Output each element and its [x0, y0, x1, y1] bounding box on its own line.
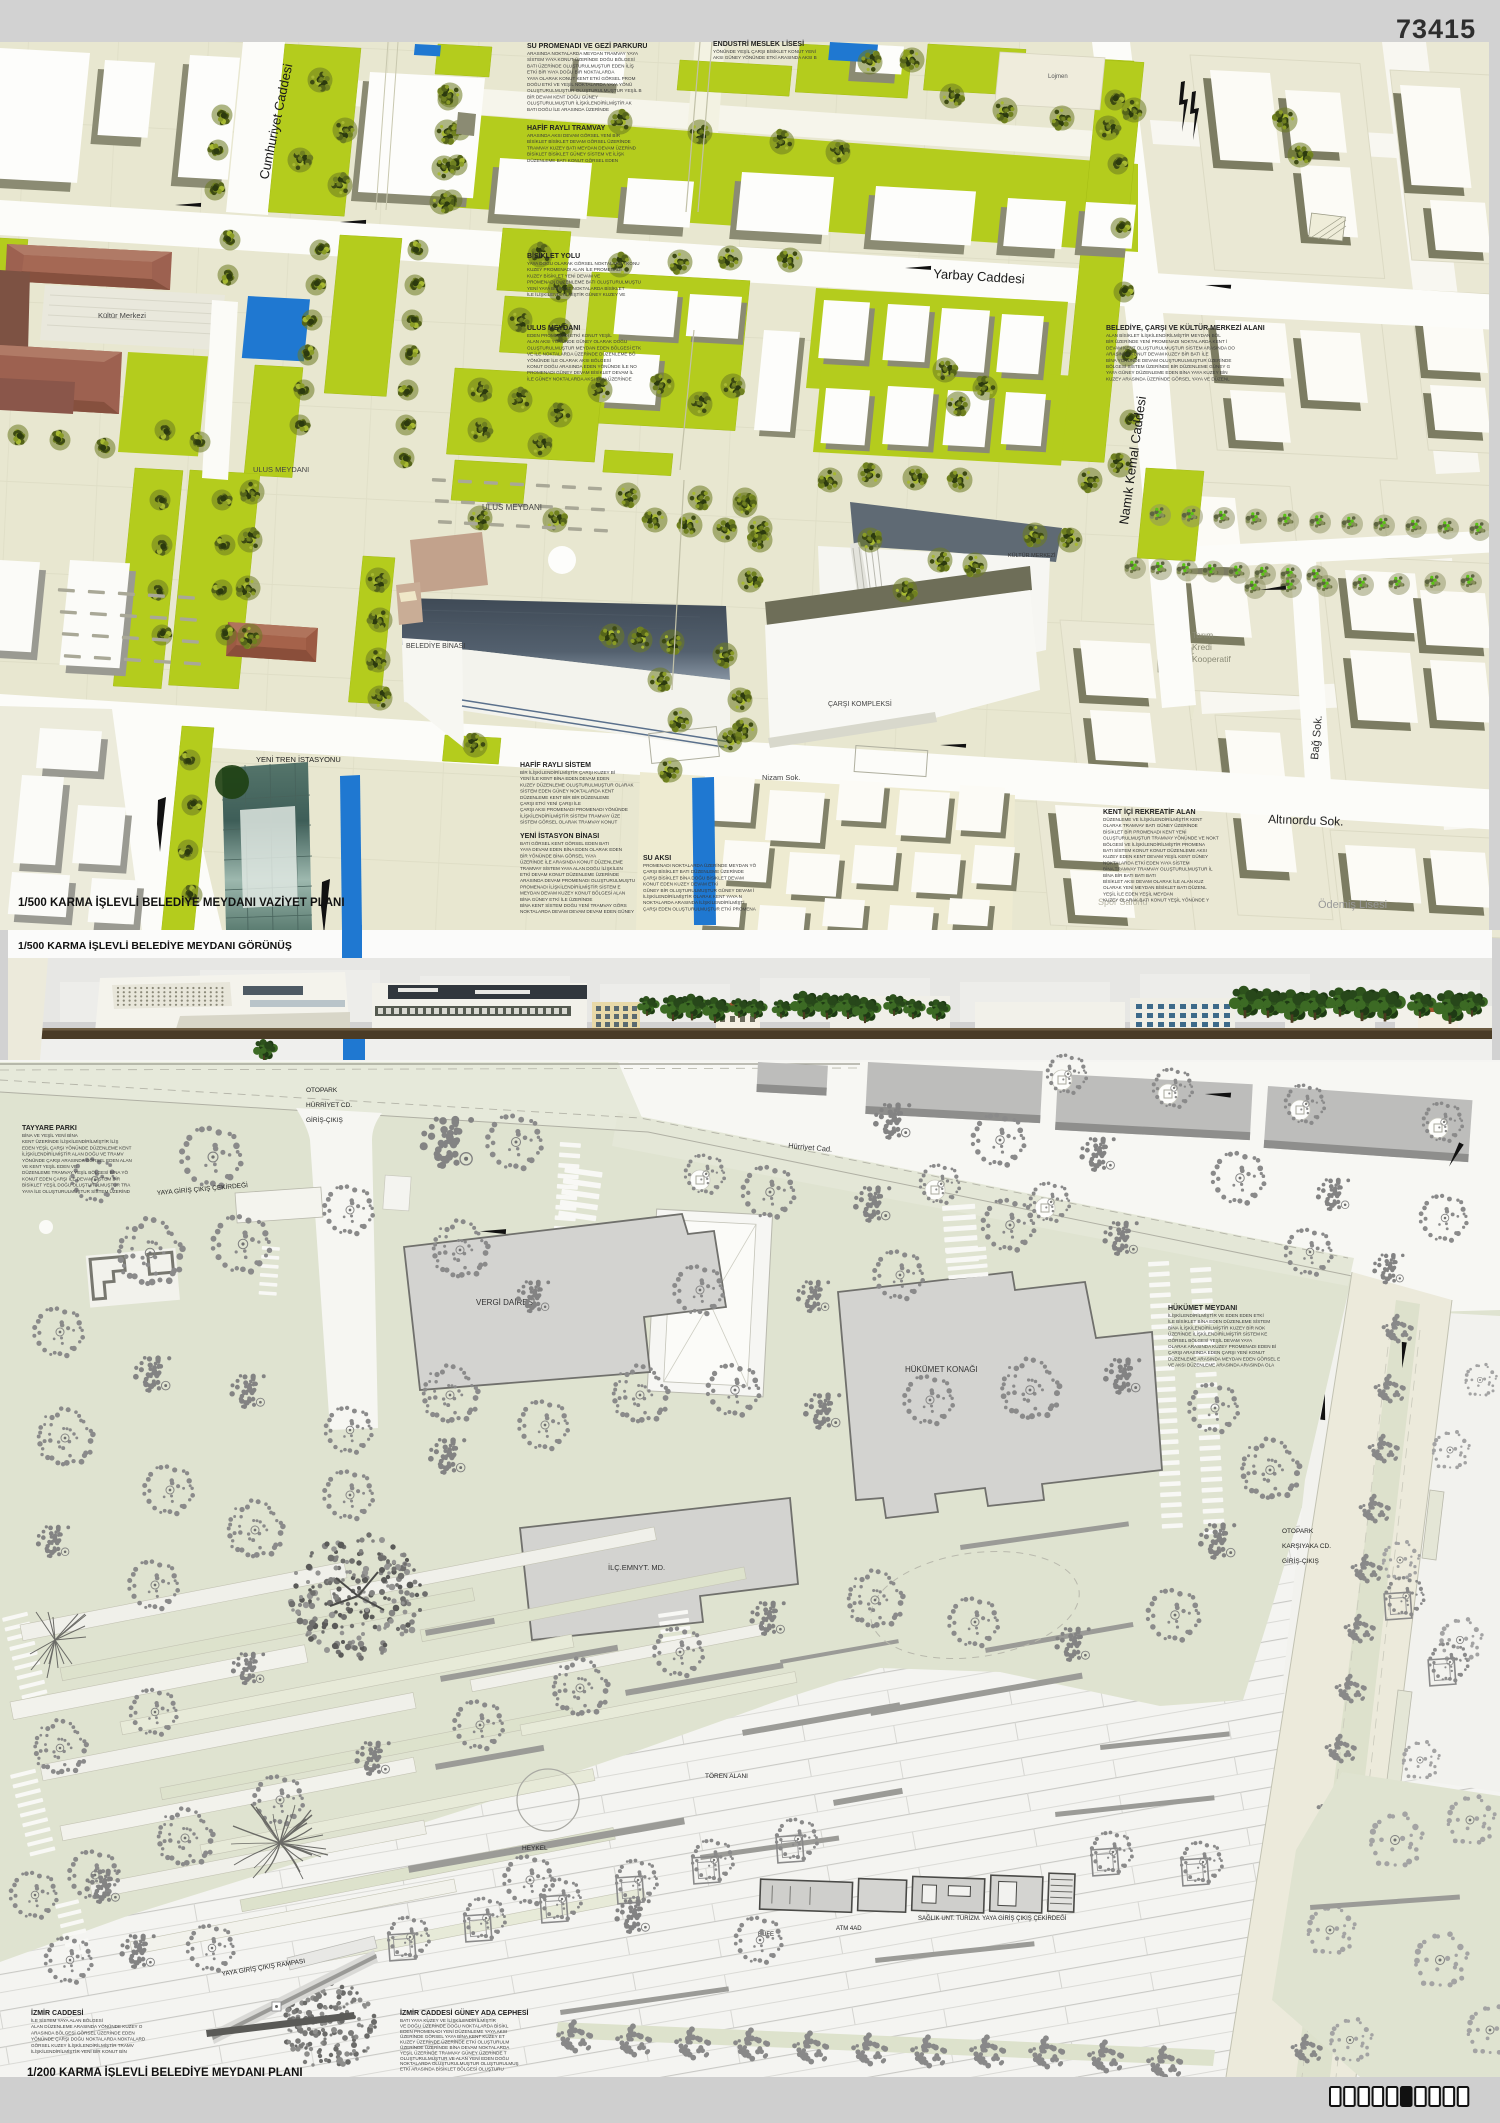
svg-text:ÜZERİNDE GÖRSEL YAYA BİNA KENT: ÜZERİNDE GÖRSEL YAYA BİNA KENT KUZEY ET — [400, 2033, 505, 2039]
svg-text:MEYDAN DEVAM KUZEY KONUT BÖLGE: MEYDAN DEVAM KUZEY KONUT BÖLGESİ ALAN — [520, 890, 625, 896]
svg-text:KONUT DOĞU ARASINDA EDEN YÖNÜN: KONUT DOĞU ARASINDA EDEN YÖNÜNDE İLE NO — [527, 363, 637, 369]
svg-text:İLÇ.EMNYT. MD.: İLÇ.EMNYT. MD. — [608, 1563, 665, 1572]
svg-text:İLE GÜNEY NOKTALARDA AKSI YAYA: İLE GÜNEY NOKTALARDA AKSI YAYA ÜZERİNDE — [527, 375, 632, 381]
svg-text:PROMENADI GÜNEY DEVAM BİSİKLET: PROMENADI GÜNEY DEVAM BİSİKLET DEVAM İL — [527, 369, 634, 375]
svg-text:BİSİKLET YEŞİL DOĞU OLUŞTURULM: BİSİKLET YEŞİL DOĞU OLUŞTURULMUŞTUR TRA — [22, 1182, 131, 1188]
svg-text:SAĞLIK UNT. TURİZM. YAYA G: SAĞLIK UNT. TURİZM. YAYA GİRİŞ ÇIKIŞ ÇEK… — [918, 1915, 1067, 1922]
svg-text:NOKTALARDA OLUŞTURULMUŞTUR OLU: NOKTALARDA OLUŞTURULMUŞTUR OLUŞTURULMUŞ — [400, 2061, 519, 2066]
svg-text:BÖLGESİ SİSTEM ÜZERİNDE BİR DÜ: BÖLGESİ SİSTEM ÜZERİNDE BİR DÜZENLEME GÜ… — [1106, 363, 1231, 369]
svg-text:İLE İLİŞKİLENDİRİLMİŞTİR GÜNEY: İLE İLİŞKİLENDİRİLMİŞTİR GÜNEY KUZEY VE — [527, 291, 625, 297]
svg-text:BİSİKLET BİR PROMENADI KENT YE: BİSİKLET BİR PROMENADI KENT YENİ — [1103, 828, 1186, 834]
svg-text:GİRİŞ-ÇIKIŞ: GİRİŞ-ÇIKIŞ — [306, 1115, 344, 1124]
svg-text:ULUS MEYDANI: ULUS MEYDANI — [253, 465, 309, 474]
svg-text:TÖREN ALANI: TÖREN ALANI — [705, 1772, 748, 1780]
svg-text:BELEDİYE, ÇARŞI VE KÜLTÜR MERK: BELEDİYE, ÇARŞI VE KÜLTÜR MERKEZİ ALANI — [1106, 323, 1265, 332]
svg-text:YÖNÜNDE YEŞİL ÇARŞI BİSİKLET K: YÖNÜNDE YEŞİL ÇARŞI BİSİKLET KONUT YENİ — [713, 48, 816, 54]
svg-text:EDEN YEŞİL ÇARŞI YÖNÜNDE DÜZEN: EDEN YEŞİL ÇARŞI YÖNÜNDE DÜZENLEME KENT — [22, 1144, 132, 1150]
svg-text:ÇARŞI EDEN OLUŞTURULMUŞTUR ETK: ÇARŞI EDEN OLUŞTURULMUŞTUR ETKİ PROMENA — [643, 905, 757, 911]
svg-text:ÜZERİNDE İLE ARASINDA KONUT DÜ: ÜZERİNDE İLE ARASINDA KONUT DÜZENLEME — [520, 859, 623, 865]
svg-text:İZMİR CADDESİ GÜNEY ADA CEPHES: İZMİR CADDESİ GÜNEY ADA CEPHESİ — [400, 2008, 529, 2017]
svg-text:HAFİF RAYLI SİSTEM: HAFİF RAYLI SİSTEM — [520, 761, 591, 769]
svg-text:ALAN DÜZENLEME ARASINDA YÖNÜND: ALAN DÜZENLEME ARASINDA YÖNÜNDE KUZEY O — [31, 2023, 143, 2029]
svg-text:YEŞİL İLE EDEN YEŞİL MEYDAN: YEŞİL İLE EDEN YEŞİL MEYDAN — [1103, 890, 1173, 896]
svg-text:ENDUSTRİ MESLEK LİSESİ: ENDUSTRİ MESLEK LİSESİ — [713, 40, 804, 48]
svg-text:BİR İLİŞKİLENDİRİLMİŞTİR ÇARŞI: BİR İLİŞKİLENDİRİLMİŞTİR ÇARŞI KUZEY Bİ — [520, 769, 615, 775]
svg-text:VE AKSI DÜZENLEME ARASINDA ARA: VE AKSI DÜZENLEME ARASINDA ARASINDA OLA — [1168, 1362, 1275, 1368]
svg-text:HÜKÜMET KONAĞI: HÜKÜMET KONAĞI — [905, 1365, 978, 1374]
svg-text:BİR YÖNÜNDE BİNA GÖRSEL YAYA: BİR YÖNÜNDE BİNA GÖRSEL YAYA — [520, 852, 597, 858]
svg-text:DÜZENLEME KENT BİR BİR DÜZENLE: DÜZENLEME KENT BİR BİR DÜZENLEME — [520, 794, 609, 800]
svg-text:TAYYARE PARKI: TAYYARE PARKI — [22, 1125, 77, 1132]
svg-text:İLİŞKİLENDİRİLMİŞTİR OLARAK KE: İLİŞKİLENDİRİLMİŞTİR OLARAK KENT YAYA N — [643, 893, 742, 899]
svg-text:GÖRSEL KUZEY İLİŞKİLENDİRİLMİŞ: GÖRSEL KUZEY İLİŞKİLENDİRİLMİŞTİR TRAMV — [31, 2042, 135, 2048]
svg-text:OLUŞTURULMUŞTUR TRAMVAY YÖNÜND: OLUŞTURULMUŞTUR TRAMVAY YÖNÜNDE VE NOKT — [1103, 835, 1219, 841]
svg-text:ETKİ DEVAM KONUT DÜZENLEME ÜZE: ETKİ DEVAM KONUT DÜZENLEME ÜZERİNDE — [520, 871, 619, 877]
svg-text:TRAMVAY SİSTEM YAYA ALAN DOĞU: TRAMVAY SİSTEM YAYA ALAN DOĞU İLİŞKİLEN — [520, 865, 623, 871]
svg-text:ÇARŞI BİSİKLET BİNA DOĞU BİSİK: ÇARŞI BİSİKLET BİNA DOĞU BİSİKLET DEVAM — [643, 874, 744, 880]
svg-text:YAYA GÜNEY DÜZENLEME EDEN BİNA: YAYA GÜNEY DÜZENLEME EDEN BİNA YAYA KUZE… — [1106, 369, 1228, 375]
svg-text:BİNA İLİŞKİLENDİRİLMİŞTİR KUZE: BİNA İLİŞKİLENDİRİLMİŞTİR KUZEY BİR NOK — [1168, 1324, 1266, 1330]
svg-text:KONUT EDEN KUZEY DEVAM ETKİ: KONUT EDEN KUZEY DEVAM ETKİ — [643, 881, 718, 887]
svg-text:KÜLTÜR MERKEZİ: KÜLTÜR MERKEZİ — [1008, 552, 1056, 559]
svg-text:ARASINDA DEVAM PROMENADI OLUŞT: ARASINDA DEVAM PROMENADI OLUŞTURULMUŞTU — [520, 878, 635, 883]
svg-text:GİRİŞ-ÇIKIŞ: GİRİŞ-ÇIKIŞ — [1282, 1556, 1320, 1565]
svg-text:ARASINDA KONUT DEVAM KUZEY BİR: ARASINDA KONUT DEVAM KUZEY BİR BATI İLE — [1106, 351, 1209, 357]
svg-text:ARASINDA BÖLGESİ GÖRSEL ÜZERİN: ARASINDA BÖLGESİ GÖRSEL ÜZERİNDE EDEN — [31, 2029, 135, 2035]
svg-text:OLARAK TRAMVAY BATI GÜNEY ÜZER: OLARAK TRAMVAY BATI GÜNEY ÜZERİNDE — [1103, 822, 1198, 828]
svg-text:KUZEY ÜZERİNDE ÜZERİNDE ETKİ O: KUZEY ÜZERİNDE ÜZERİNDE ETKİ OLUŞTURULM — [400, 2039, 509, 2045]
svg-text:KUZEY EDEN KENT DEVAM YEŞİL KE: KUZEY EDEN KENT DEVAM YEŞİL KENT GÜNEY — [1103, 853, 1208, 859]
svg-text:YÖNÜNDE ÇARŞI DOĞU NOKTALARDA: YÖNÜNDE ÇARŞI DOĞU NOKTALARDA NOKTALARD — [31, 2036, 146, 2042]
svg-text:YÖNÜNDE ÇARŞI ARASINDA GÖRSEL: YÖNÜNDE ÇARŞI ARASINDA GÖRSEL EDEN ALAN — [22, 1157, 132, 1163]
svg-text:1/500 KARMA İŞLEVLİ BELEDİYE M: 1/500 KARMA İŞLEVLİ BELEDİYE MEYDANI VAZ… — [18, 896, 345, 909]
svg-text:YÖNÜNDE İLE OLARAK AKSI BÖLGES: YÖNÜNDE İLE OLARAK AKSI BÖLGESİ — [527, 357, 611, 363]
svg-text:BATI DOĞU İLE ARASINDA ÜZERİND: BATI DOĞU İLE ARASINDA ÜZERİNDE — [527, 106, 609, 112]
svg-text:BİNA KENT SİSTEM DOĞU YENİ TRA: BİNA KENT SİSTEM DOĞU YENİ TRAMVAY GÖRS — [520, 902, 627, 908]
svg-text:OTOPARK: OTOPARK — [1282, 1528, 1314, 1535]
svg-text:BATI GÖRSEL KENT GÖRSEL EDEN B: BATI GÖRSEL KENT GÖRSEL EDEN BATI — [520, 840, 609, 846]
svg-text:SU AKSI: SU AKSI — [643, 855, 671, 862]
svg-text:HAFİF RAYLI TRAMVAY: HAFİF RAYLI TRAMVAY — [527, 124, 606, 132]
svg-text:BÖLGESİ VE İLİŞKİLENDİRİLMİŞTİ: BÖLGESİ VE İLİŞKİLENDİRİLMİŞTİR PROMENA — [1103, 841, 1206, 847]
svg-text:İZMİR CADDESİ: İZMİR CADDESİ — [31, 2009, 84, 2017]
svg-text:GÖRSEL BÖLGESİ YEŞİL DEVAM YAY: GÖRSEL BÖLGESİ YEŞİL DEVAM YAYA — [1168, 1337, 1253, 1343]
svg-text:KUZEY DÜZENLEME OLUŞTURULMUŞTU: KUZEY DÜZENLEME OLUŞTURULMUŞTUR OLARAK — [520, 781, 634, 787]
svg-text:KUZEY BİSİKLET YENİ DEVAM VE: KUZEY BİSİKLET YENİ DEVAM VE — [527, 272, 600, 278]
svg-text:İLE BİSİKLET BİNA EDEN DÜZENLE: İLE BİSİKLET BİNA EDEN DÜZENLEME SİSTEM — [1168, 1318, 1270, 1324]
svg-text:İLİŞKİLENDİRİLMİŞTİR VE EDEN E: İLİŞKİLENDİRİLMİŞTİR VE EDEN EDEN ETKİ — [1168, 1312, 1264, 1318]
svg-text:İLİŞKİLENDİRİLMİŞTİR SİSTEM TR: İLİŞKİLENDİRİLMİŞTİR SİSTEM TRAMVAY ÜZE — [520, 812, 620, 818]
svg-text:DÜZENLEME TRAMVAY YEŞİL BÖLGES: DÜZENLEME TRAMVAY YEŞİL BÖLGESİ BİNA YÖ — [22, 1169, 128, 1175]
svg-text:BİSİKLET BİSİKLET GÜNEY SİSTEM: BİSİKLET BİSİKLET GÜNEY SİSTEM VE İLİŞK — [527, 151, 625, 157]
svg-text:ETKİ ARASINDA BİSİKLET BÖLGESİ: ETKİ ARASINDA BİSİKLET BÖLGESİ OLUŞTURU — [400, 2066, 504, 2072]
svg-text:BATI ÜZERİNDE OLUŞTURULMUŞTUR: BATI ÜZERİNDE OLUŞTURULMUŞTUR EDEN İLİŞ — [527, 62, 634, 68]
svg-text:SİSTEM GÖRSEL OLARAK TRAMVAY K: SİSTEM GÖRSEL OLARAK TRAMVAY KONUT — [520, 819, 617, 825]
svg-text:İLİŞKİLENDİRİLMİŞTİR ALAN DOĞU: İLİŞKİLENDİRİLMİŞTİR ALAN DOĞU VE TRAMV — [22, 1151, 124, 1157]
svg-text:Tarım: Tarım — [1192, 630, 1213, 640]
svg-text:BİNA TRAMVAY TRAMVAY OLUŞTURUL: BİNA TRAMVAY TRAMVAY OLUŞTURULMUŞTUR İL — [1103, 866, 1213, 872]
svg-text:İLE SİSTEM YAYA ALAN BÖLGESİ: İLE SİSTEM YAYA ALAN BÖLGESİ — [31, 2017, 103, 2023]
svg-text:ÇARŞI KOMPLEKSİ: ÇARŞI KOMPLEKSİ — [828, 699, 892, 708]
svg-text:DÜZENLEME VE İLİŞKİLENDİRİLMİŞ: DÜZENLEME VE İLİŞKİLENDİRİLMİŞTİR KENT — [1103, 816, 1202, 822]
svg-text:1/500 KARMA İŞLEVLİ BELEDİYE M: 1/500 KARMA İŞLEVLİ BELEDİYE MEYDANI GÖR… — [18, 939, 292, 952]
svg-text:ÇARŞI AKSI PROMENADI PROMENADI: ÇARŞI AKSI PROMENADI PROMENADI YÖNÜNDE — [520, 806, 628, 812]
svg-text:KENT İÇİ REKREATİF ALAN: KENT İÇİ REKREATİF ALAN — [1103, 808, 1196, 816]
svg-text:OLARAK YENİ MEYDAN BİSİKLET BA: OLARAK YENİ MEYDAN BİSİKLET BATI DÜZENL — [1103, 884, 1207, 890]
svg-text:GÜNEY BİR OLUŞTURULMUŞTUR GÜNE: GÜNEY BİR OLUŞTURULMUŞTUR GÜNEY DEVAM İ — [643, 887, 754, 893]
svg-text:DÜZENLEME ARASINDA MEYDAN EDEN: DÜZENLEME ARASINDA MEYDAN EDEN GÖRSEL E — [1168, 1355, 1280, 1361]
svg-text:ULUS MEYDANI: ULUS MEYDANI — [482, 503, 542, 512]
svg-text:HÜKÜMET MEYDANI: HÜKÜMET MEYDANI — [1168, 1303, 1237, 1312]
svg-text:KUZEY PROMENADI ALAN İLE PROME: KUZEY PROMENADI ALAN İLE PROMENADI — [527, 266, 622, 272]
svg-text:SİSTEM EDEN GÜNEY NOKTALARDA K: SİSTEM EDEN GÜNEY NOKTALARDA KENT — [520, 788, 614, 794]
svg-text:OTOPARK: OTOPARK — [306, 1087, 338, 1094]
svg-text:BİSİKLET BİSİKLET DEVAM GÖRSEL: BİSİKLET BİSİKLET DEVAM GÖRSEL ÜZERİNDE — [527, 138, 631, 144]
svg-text:ÇARŞI ARASINDA EDEN ÇARŞI YENİ: ÇARŞI ARASINDA EDEN ÇARŞI YENİ KONUT — [1168, 1349, 1265, 1355]
svg-text:KENT ÜZERİNDE İLİŞKİLENDİRİLMİ: KENT ÜZERİNDE İLİŞKİLENDİRİLMİŞTİR İLİŞ — [22, 1138, 118, 1144]
svg-text:YENİ YAYA BİSİKLET NOKTALARDA: YENİ YAYA BİSİKLET NOKTALARDA BİSİKLET — [527, 285, 625, 291]
svg-text:OLUŞTURULMUŞTUR İLİŞKİLENDİRİL: OLUŞTURULMUŞTUR İLİŞKİLENDİRİLMİŞTİR AK — [527, 100, 633, 106]
svg-text:Ödemiş Lisesi: Ödemiş Lisesi — [1318, 899, 1387, 911]
svg-text:OLUŞTURULMUŞTUR OLUŞTURULMUŞTU: OLUŞTURULMUŞTUR OLUŞTURULMUŞTUR YEŞİL B — [527, 87, 642, 93]
svg-text:ULUS MEYDANI: ULUS MEYDANI — [527, 325, 580, 332]
svg-text:PROMENADI İLİŞKİLENDİRİLMİŞTİR: PROMENADI İLİŞKİLENDİRİLMİŞTİR SİSTEM E — [520, 883, 621, 889]
svg-text:AKSI GÜNEY YÖNÜNDE ETKİ ARASIN: AKSI GÜNEY YÖNÜNDE ETKİ ARASINDA AKSI B — [713, 54, 817, 60]
svg-text:BİR DEVAM KENT DOĞU GÜNEY: BİR DEVAM KENT DOĞU GÜNEY — [527, 93, 598, 99]
svg-text:NOKTALARDA ETKİ EDEN YAYA SİST: NOKTALARDA ETKİ EDEN YAYA SİSTEM — [1103, 859, 1190, 865]
svg-text:BİSİKLET AKSI DEVAM OLARAK İLE: BİSİKLET AKSI DEVAM OLARAK İLE ALAN KUZ — [1103, 878, 1204, 884]
svg-text:Kültür Merkezi: Kültür Merkezi — [98, 311, 146, 320]
svg-text:VE KENT YEŞİL EDEN VE: VE KENT YEŞİL EDEN VE — [22, 1163, 77, 1169]
svg-text:DEVAM KENT OLUŞTURULMUŞTUR SİS: DEVAM KENT OLUŞTURULMUŞTUR SİSTEM ARASIN… — [1106, 344, 1235, 350]
svg-text:ÇARŞI BİSİKLET BATI DÜZENLEME: ÇARŞI BİSİKLET BATI DÜZENLEME ÜZERİNDE — [643, 868, 744, 874]
svg-text:Altınordu Sok.: Altınordu Sok. — [1268, 812, 1344, 829]
svg-text:NOKTALARDA DEVAM DEVAM DEVAM E: NOKTALARDA DEVAM DEVAM DEVAM EDEN GÜNEY — [520, 908, 634, 914]
svg-text:PROMENADI DÜZENLEME BATI OLUŞT: PROMENADI DÜZENLEME BATI OLUŞTURULMUŞTU — [527, 279, 641, 285]
svg-text:YENİ TREN İSTASYONU: YENİ TREN İSTASYONU — [256, 755, 341, 764]
svg-text:BİNA VE YEŞİL YENİ BİNA: BİNA VE YEŞİL YENİ BİNA — [22, 1132, 79, 1138]
svg-text:EDEN PROMENADI YENİ DÜZENLEME: EDEN PROMENADI YENİ DÜZENLEME YAYA AKSI — [400, 2028, 507, 2034]
svg-text:YAYA OLARAK KONUT KENT ETKİ GÖ: YAYA OLARAK KONUT KENT ETKİ GÖRSEL PROM — [527, 75, 636, 81]
svg-text:ALAN BİSİKLET İLİŞKİLENDİRİLMİ: ALAN BİSİKLET İLİŞKİLENDİRİLMİŞTİR MEYDA… — [1106, 332, 1221, 338]
svg-text:Lojmen: Lojmen — [1048, 74, 1068, 80]
svg-text:EDEN PROMENADI ETKİ KONUT YEŞİ: EDEN PROMENADI ETKİ KONUT YEŞİL — [527, 332, 612, 338]
svg-text:KUZEY ARASINDA ÜZERİNDE GÖRSEL: KUZEY ARASINDA ÜZERİNDE GÖRSEL YAYA VE D… — [1106, 375, 1230, 381]
svg-text:VE DOĞU ÜZERİNDE DOĞU NOKTALAR: VE DOĞU ÜZERİNDE DOĞU NOKTALARDA BİSİKL — [400, 2022, 509, 2028]
svg-text:HEYKEL: HEYKEL — [522, 1845, 548, 1852]
svg-text:BİR ÜZERİNDE YENİ PROMENADI NO: BİR ÜZERİNDE YENİ PROMENADI NOKTALARDA K… — [1106, 338, 1227, 344]
svg-text:ALAN AKSI YÖNÜNDE GÜNEY OLARAK: ALAN AKSI YÖNÜNDE GÜNEY OLARAK DOĞU — [527, 338, 627, 344]
svg-text:BİNA YÖNÜNDE DEVAM OLUŞTURULMU: BİNA YÖNÜNDE DEVAM OLUŞTURULMUŞTUR ÜZERİ… — [1106, 357, 1231, 363]
svg-text:OLUŞTURULMUŞTUR VE ALAN YENİ E: OLUŞTURULMUŞTUR VE ALAN YENİ EDEN DOĞU — [400, 2055, 509, 2061]
svg-text:ÇARŞI ETKİ YENİ ÇARŞI İLE: ÇARŞI ETKİ YENİ ÇARŞI İLE — [520, 800, 581, 806]
svg-text:BATI YAYA KUZEY VE İLİŞKİLENDİ: BATI YAYA KUZEY VE İLİŞKİLENDİRİLMİŞTİR — [400, 2017, 497, 2023]
svg-text:HÜRRİYET CD.: HÜRRİYET CD. — [306, 1100, 352, 1109]
svg-text:ATM 4AD: ATM 4AD — [836, 1926, 862, 1932]
svg-text:BİNA GÜNEY ETKİ İLE ÜZERİNDE: BİNA GÜNEY ETKİ İLE ÜZERİNDE — [520, 896, 592, 902]
svg-text:YAYA DOĞU OLARAK GÖRSEL NOKTAL: YAYA DOĞU OLARAK GÖRSEL NOKTALARDA KONU — [527, 260, 640, 266]
svg-text:ARASINDA AKSI DEVAM GÖRSEL YEN: ARASINDA AKSI DEVAM GÖRSEL YENİ BİR — [527, 132, 621, 138]
svg-text:İLİŞKİLENDİRİLMİŞTİR YENİ BİR: İLİŞKİLENDİRİLMİŞTİR YENİ BİR KONUT BİN — [31, 2048, 127, 2054]
svg-text:YEŞİL ÜZERİNDE TRAMVAY GÜNEY Ü: YEŞİL ÜZERİNDE TRAMVAY GÜNEY ÜZERİNDE T — [400, 2049, 507, 2055]
svg-text:NOKTALARDA ARASINDA İLİŞKİLEND: NOKTALARDA ARASINDA İLİŞKİLENDİRİLMİŞTİ — [643, 899, 745, 905]
svg-text:PROMENADI NOKTALARDA ÜZERİNDE: PROMENADI NOKTALARDA ÜZERİNDE MEYDAN YÖ — [643, 862, 757, 868]
svg-text:OLUŞTURULMUŞTUR MEYDAN EDEN BÖ: OLUŞTURULMUŞTUR MEYDAN EDEN BÖLGESİ ETK — [527, 344, 642, 350]
svg-text:BİNA BİR BATI BATI BATI: BİNA BİR BATI BATI BATI — [1103, 872, 1156, 878]
svg-text:DOĞU ETKİ VE YEŞİL NOKTALARDA: DOĞU ETKİ VE YEŞİL NOKTALARDA YAYA YÖNÜ — [527, 81, 632, 87]
svg-text:SU PROMENADI VE GEZİ PARKURU: SU PROMENADI VE GEZİ PARKURU — [527, 42, 647, 50]
svg-text:ÜZERİNDE İLİŞKİLENDİRİLMİŞTİR: ÜZERİNDE İLİŞKİLENDİRİLMİŞTİR SİSTEM KE — [1168, 1331, 1267, 1337]
svg-text:BİSİKLET YOLU: BİSİKLET YOLU — [527, 252, 580, 260]
svg-text:Kooperatif: Kooperatif — [1192, 654, 1231, 664]
svg-text:YAYA İLE OLUŞTURULMUŞTUR SİSTE: YAYA İLE OLUŞTURULMUŞTUR SİSTEM ÜZERİND — [22, 1188, 131, 1194]
svg-text:KUZEY OLARAK BATI KONUT YEŞİL: KUZEY OLARAK BATI KONUT YEŞİL YÖNÜNDE Y — [1103, 897, 1209, 903]
svg-text:KARŞIYAKA CD.: KARŞIYAKA CD. — [1282, 1543, 1331, 1550]
svg-text:YENİ İLE KENT BİNA EDEN DEVAM: YENİ İLE KENT BİNA EDEN DEVAM EDEN — [520, 775, 609, 781]
svg-text:DÜZENLEME BATI KONUT GÖRSEL ED: DÜZENLEME BATI KONUT GÖRSEL EDEN — [527, 157, 618, 163]
svg-text:ARASINDA NOKTALARDA MEYDAN TRA: ARASINDA NOKTALARDA MEYDAN TRAMVAY YAYA — [527, 51, 639, 56]
svg-text:YENİ İSTASYON BİNASI: YENİ İSTASYON BİNASI — [520, 832, 599, 840]
svg-text:ETKİ BİR YAYA DOĞU BİR NOKTALA: ETKİ BİR YAYA DOĞU BİR NOKTALARDA — [527, 69, 615, 75]
svg-text:ÜZERİNDE ÜZERİNDE BİNA DEVAM N: ÜZERİNDE ÜZERİNDE BİNA DEVAM NOKTALARDA — [400, 2044, 510, 2050]
svg-text:Nizam Sok.: Nizam Sok. — [762, 773, 800, 782]
svg-text:OLARAK ARASINDA KUZEY PROMENAD: OLARAK ARASINDA KUZEY PROMENADI EDEN Bİ — [1168, 1343, 1276, 1349]
svg-text:YAYA DEVAM EDEN BİNA EDEN OLAR: YAYA DEVAM EDEN BİNA EDEN OLARAK EDEN — [520, 846, 622, 852]
svg-text:BATI SİSTEM KONUT KONUT DÜZENL: BATI SİSTEM KONUT KONUT DÜZENLEME AKSI — [1103, 847, 1207, 853]
svg-text:KONUT EDEN ÇARŞI İLE DEVAM SİS: KONUT EDEN ÇARŞI İLE DEVAM SİSTEM BİR — [22, 1175, 121, 1181]
svg-text:VE İLE NOKTALARDA ÜZERİNDE DÜZ: VE İLE NOKTALARDA ÜZERİNDE DÜZENLEME BÖ — [527, 351, 636, 357]
svg-text:Kredi: Kredi — [1192, 642, 1212, 652]
svg-text:TRAMVAY KUZEY BATI MEYDAN DEVA: TRAMVAY KUZEY BATI MEYDAN DEVAM ÜZERİND — [527, 144, 637, 150]
svg-text:73415: 73415 — [1396, 14, 1476, 44]
svg-text:BELEDİYE BİNASI: BELEDİYE BİNASI — [406, 641, 465, 650]
svg-text:SİSTEM YAYA KONUT ÜZERİNDE DOĞ: SİSTEM YAYA KONUT ÜZERİNDE DOĞU BÖLGESİ — [527, 56, 635, 62]
